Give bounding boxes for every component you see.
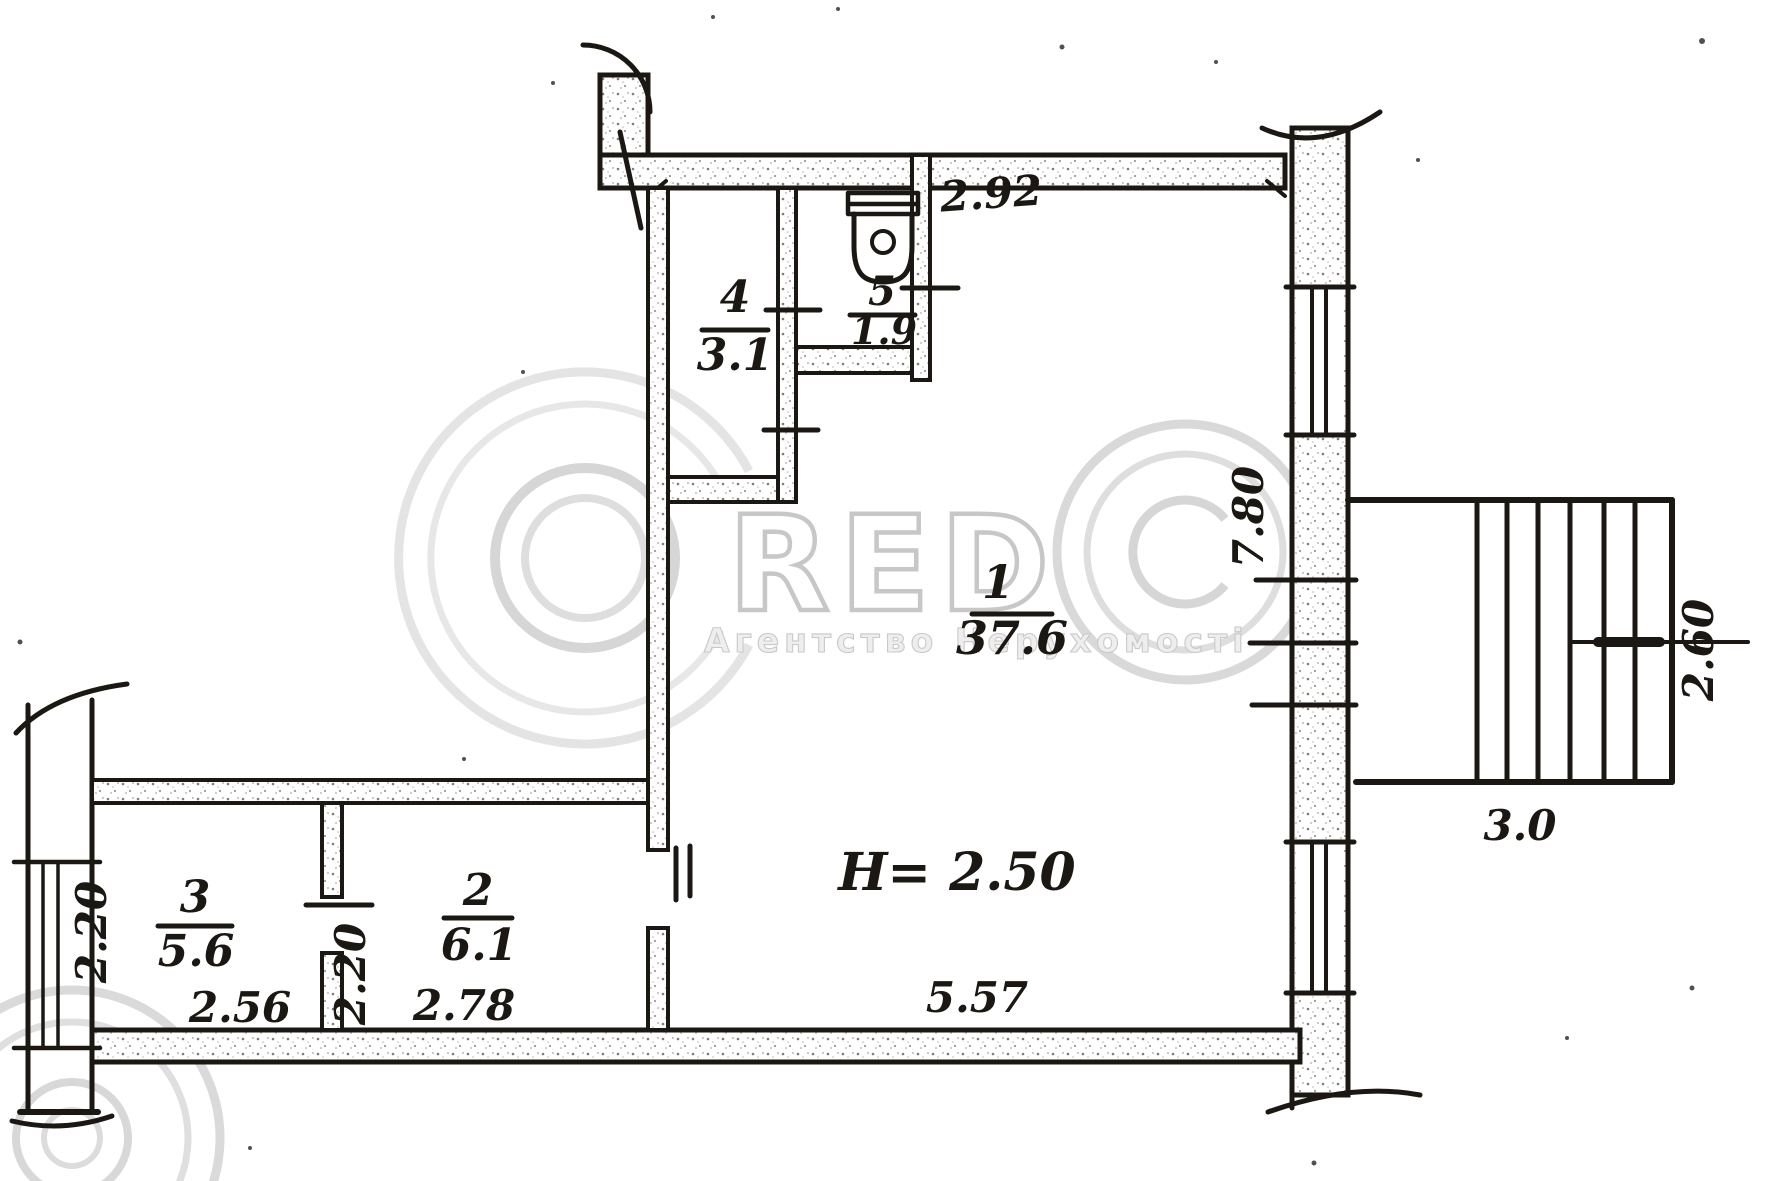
watermark-rings-bottom-left <box>0 990 220 1181</box>
room1-number: 1 <box>982 555 1014 609</box>
window-right-upper <box>1286 287 1354 435</box>
room5-area: 1.9 <box>851 308 917 353</box>
dim-stairs-width: 3.0 <box>1483 801 1556 850</box>
window-right-lower <box>1286 842 1354 993</box>
left-top-door-arc <box>16 684 127 733</box>
rooms-3-2-divider-upper <box>322 803 342 897</box>
room2-area: 6.1 <box>441 920 518 971</box>
central-wall-upper <box>648 188 668 850</box>
watermark-rings-left <box>399 372 749 744</box>
dim-room1-bottom: 5.57 <box>926 973 1028 1022</box>
dim-right-height: 7.80 <box>1224 466 1273 568</box>
toilet-cistern <box>848 193 918 214</box>
toilet-drain <box>872 231 894 253</box>
dim-stairs-depth: 2.60 <box>1674 599 1723 702</box>
dim-room3-height: 2.20 <box>67 881 116 984</box>
room4-bottom-wall <box>668 477 778 502</box>
dim-room2-bottom: 2.78 <box>412 981 515 1030</box>
room5-label: 5 1.9 <box>850 268 917 353</box>
room4-area: 3.1 <box>697 330 774 381</box>
room4-number: 4 <box>720 272 751 323</box>
floor-plan-scan: RED Агентство Нерухомості <box>0 0 1772 1181</box>
copyright-c-arc <box>1133 500 1225 604</box>
dim-top-width: 2.92 <box>937 166 1043 222</box>
room3-label: 3 5.6 <box>158 872 235 977</box>
room3-area: 5.6 <box>158 926 235 977</box>
watermark-inner-ring-2 <box>525 498 645 618</box>
central-wall-lower <box>648 928 668 1030</box>
watermark-outer-ring-arc <box>399 372 749 744</box>
dim-room3-bottom: 2.56 <box>188 983 291 1032</box>
dim-ceiling-height: H= 2.50 <box>836 842 1075 903</box>
bottom-wall <box>92 1030 1300 1062</box>
corner-ring-4 <box>44 1110 100 1166</box>
room2-number: 2 <box>462 865 494 916</box>
room4-label: 4 3.1 <box>697 272 774 381</box>
dim-room2-height: 2.20 <box>326 923 375 1026</box>
floor-plan-drawing: RED Агентство Нерухомості <box>0 0 1772 1181</box>
room1-area: 37.6 <box>956 611 1068 665</box>
room2-door-marks <box>676 846 690 900</box>
rooms-3-2-top-wall <box>92 780 648 803</box>
wall-between-4-and-5 <box>778 188 796 502</box>
room3-number: 3 <box>180 872 211 923</box>
room2-label: 2 6.1 <box>441 865 518 971</box>
